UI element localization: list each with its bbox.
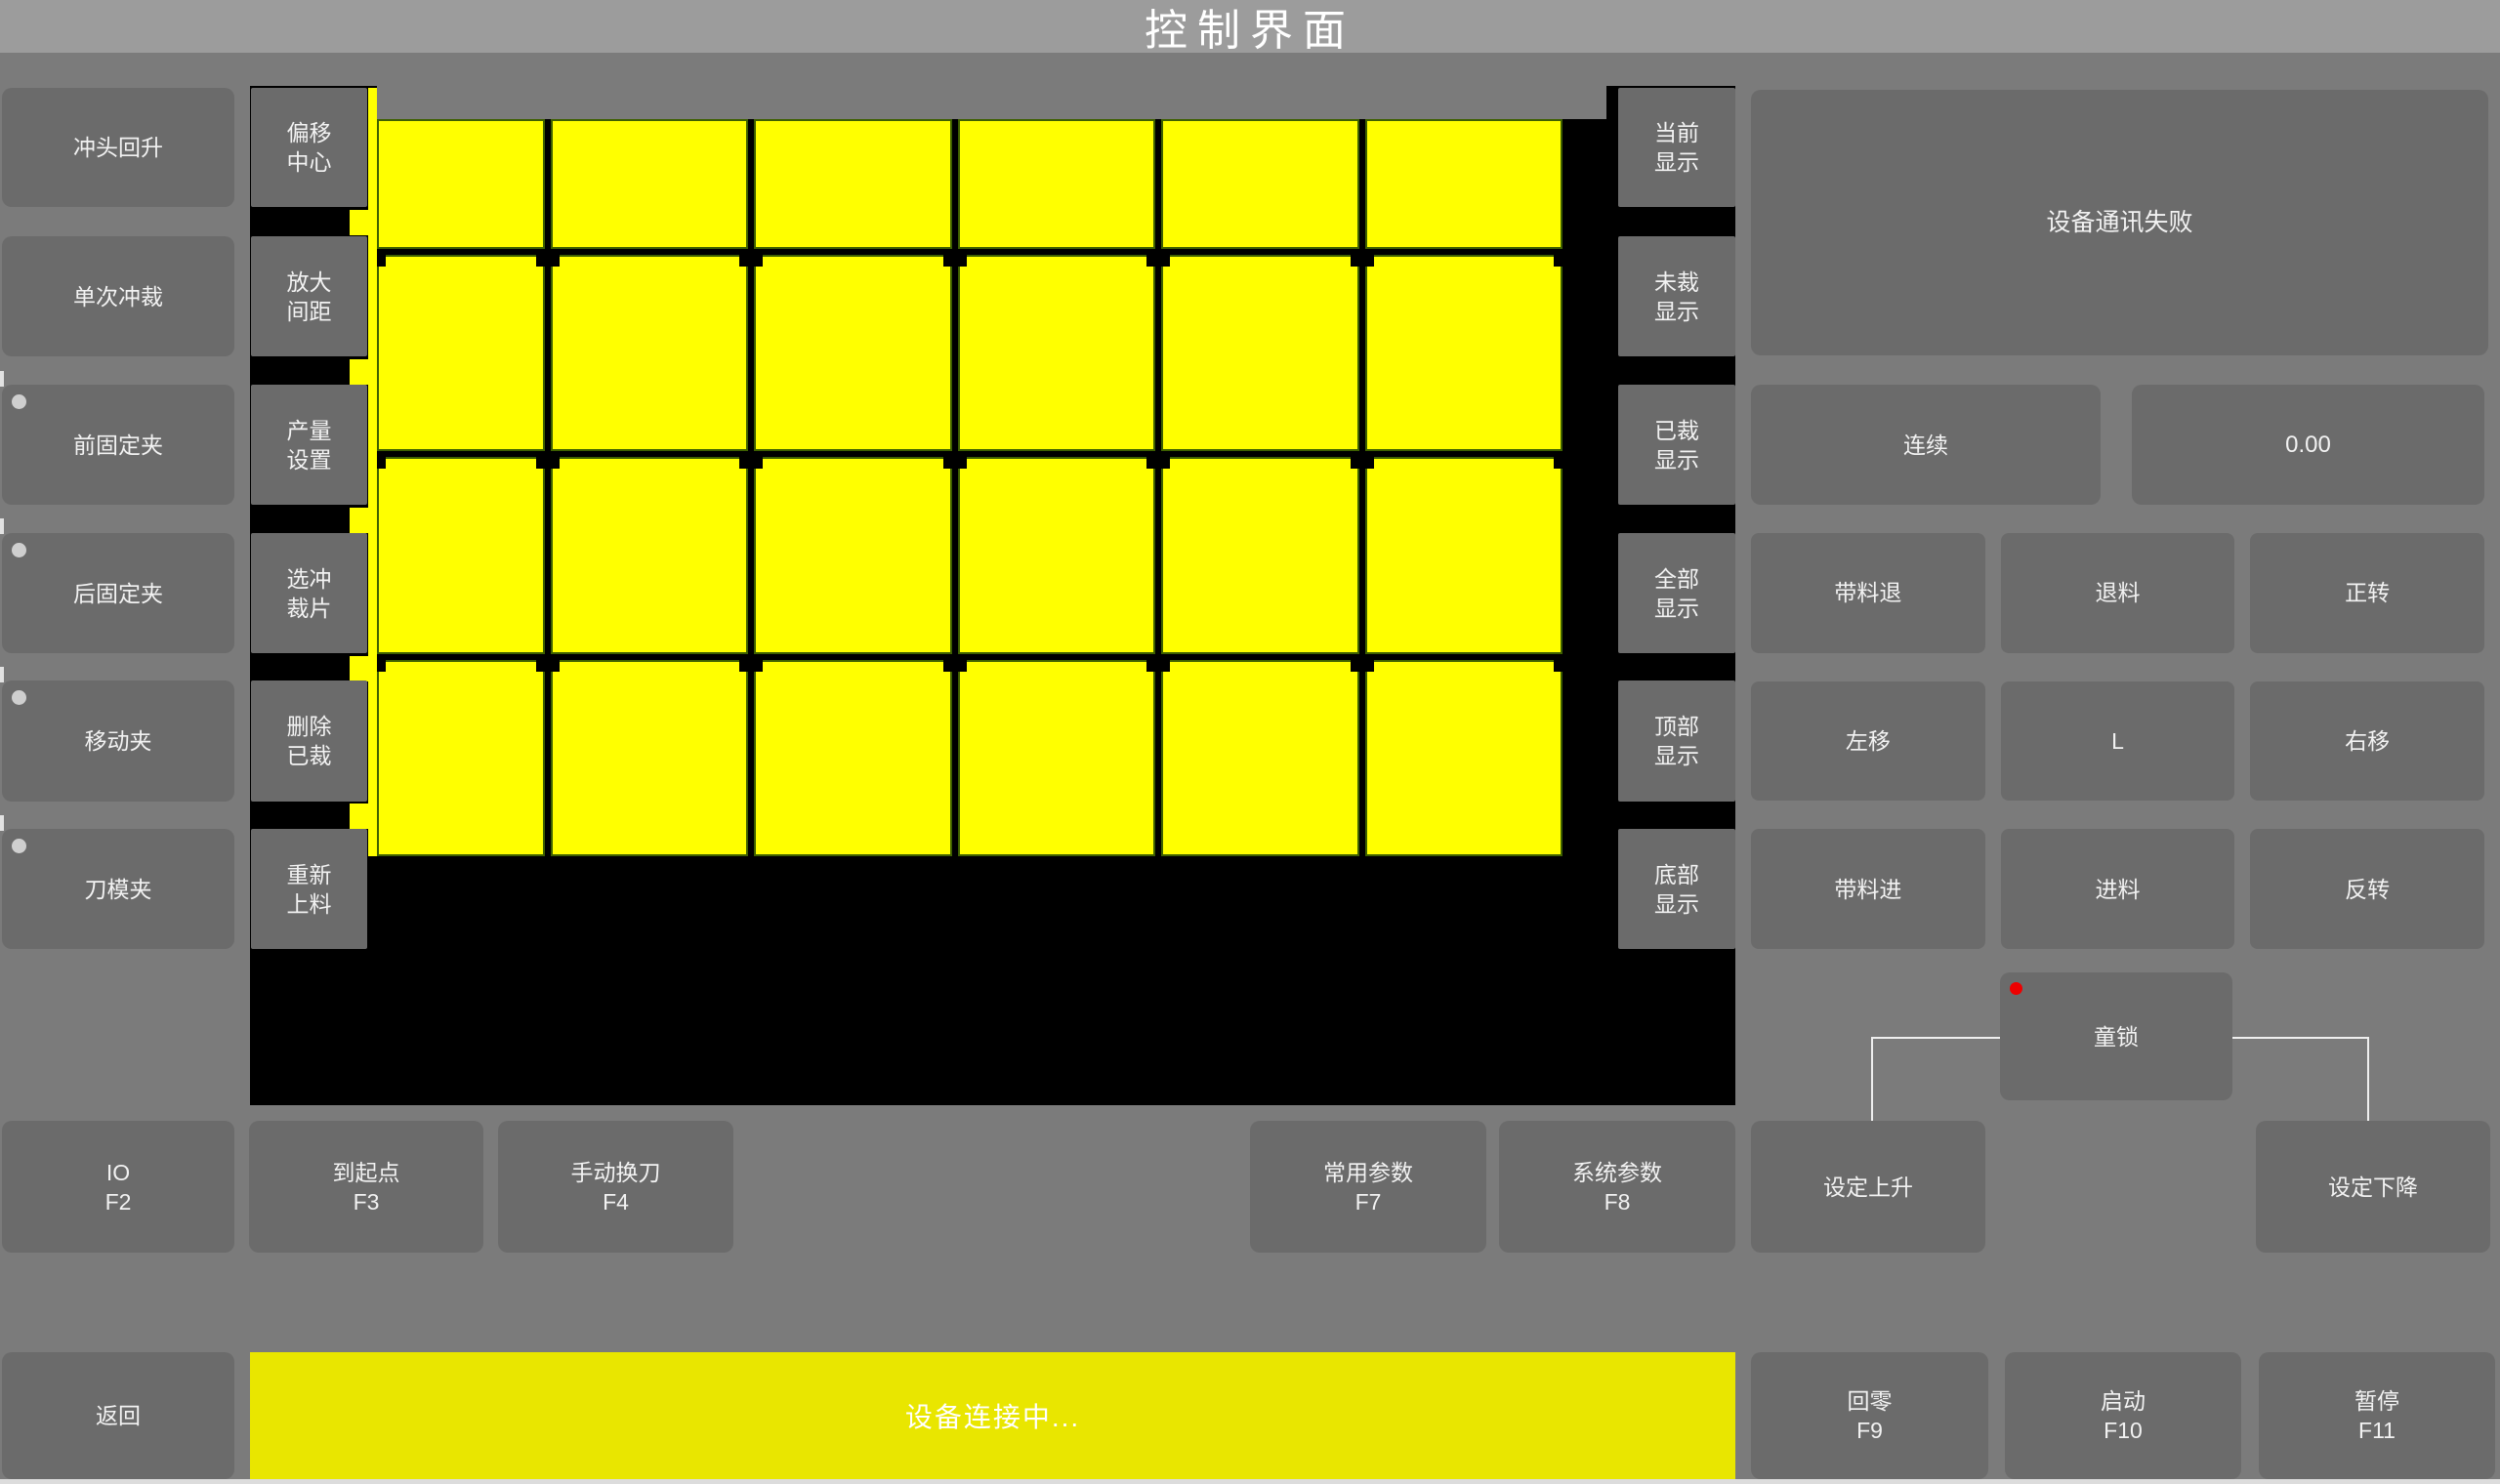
bracket-line xyxy=(2367,1037,2369,1121)
button-offset-center[interactable]: 偏移 中心 xyxy=(251,88,367,207)
grid-cell[interactable] xyxy=(754,119,951,249)
grid-cell[interactable] xyxy=(377,119,545,249)
status-message-panel: 设备通讯失败 xyxy=(1751,90,2488,355)
button-common-params-f7[interactable]: 常用参数 F7 xyxy=(1250,1121,1486,1253)
button-move-right[interactable]: 右移 xyxy=(2250,681,2484,802)
layout-canvas xyxy=(250,86,1735,1105)
bottom-edge-strip xyxy=(0,1479,2500,1484)
button-set-fall[interactable]: 设定下降 xyxy=(2256,1121,2490,1253)
button-origin-f3[interactable]: 到起点 F3 xyxy=(249,1121,483,1253)
button-l[interactable]: L xyxy=(2001,681,2235,802)
button-material-forward[interactable]: 带料进 xyxy=(1751,829,1985,949)
grid-cell[interactable] xyxy=(1161,255,1358,451)
grid-cell[interactable] xyxy=(754,660,951,856)
grid-cell[interactable] xyxy=(958,457,1155,653)
grid-cell[interactable] xyxy=(377,457,545,653)
button-delete-cut[interactable]: 删除 已裁 xyxy=(251,680,367,802)
grid-cell[interactable] xyxy=(958,255,1155,451)
grid-cell[interactable] xyxy=(1365,255,1562,451)
button-system-params-f8[interactable]: 系统参数 F8 xyxy=(1499,1121,1735,1253)
edge-tick xyxy=(0,815,4,831)
page-title: 控制界面 xyxy=(1145,0,1355,58)
button-rear-clamp[interactable]: 后固定夹 xyxy=(2,533,234,653)
grid-cell[interactable] xyxy=(1365,119,1562,249)
button-front-clamp[interactable]: 前固定夹 xyxy=(2,385,234,505)
grid-cell[interactable] xyxy=(1161,119,1358,249)
bracket-line xyxy=(2232,1037,2369,1039)
button-pause-f11[interactable]: 暂停 F11 xyxy=(2259,1352,2495,1479)
button-moving-clamp[interactable]: 移动夹 xyxy=(2,680,234,802)
grid-cell[interactable] xyxy=(958,119,1155,249)
button-unload[interactable]: 退料 xyxy=(2001,533,2235,653)
button-load[interactable]: 进料 xyxy=(2001,829,2235,949)
status-message: 设备通讯失败 xyxy=(2046,208,2192,237)
grid-cell[interactable] xyxy=(551,457,748,653)
button-manual-tool-change-f4[interactable]: 手动换刀 F4 xyxy=(498,1121,733,1253)
button-top-view[interactable]: 顶部 显示 xyxy=(1618,680,1735,802)
edge-tick xyxy=(0,518,4,534)
bracket-line xyxy=(1871,1037,1873,1121)
material-left-tab xyxy=(350,656,369,681)
button-select-pieces[interactable]: 选冲 裁片 xyxy=(251,533,367,653)
edge-tick xyxy=(0,371,4,387)
grid-cell[interactable] xyxy=(1161,457,1358,653)
edge-tick xyxy=(0,667,4,682)
connection-status-bar: 设备连接中... xyxy=(250,1352,1735,1479)
material-left-tab xyxy=(350,210,369,235)
red-indicator-dot xyxy=(2010,982,2022,995)
button-reload-material[interactable]: 重新 上料 xyxy=(251,829,367,949)
grid-cell[interactable] xyxy=(1365,660,1562,856)
grid-cell[interactable] xyxy=(958,660,1155,856)
button-punch-rise[interactable]: 冲头回升 xyxy=(2,88,234,207)
grid-cell[interactable] xyxy=(551,255,748,451)
grid-cell[interactable] xyxy=(377,660,545,856)
mode-button[interactable]: 连续 xyxy=(1751,385,2101,505)
value-display[interactable]: 0.00 xyxy=(2132,385,2484,505)
material-left-tab xyxy=(350,359,369,385)
button-forward-rotate[interactable]: 正转 xyxy=(2250,533,2484,653)
grid-cell[interactable] xyxy=(1161,660,1358,856)
status-dot xyxy=(12,543,26,557)
material-left-tab xyxy=(350,508,369,533)
child-lock-button[interactable]: 童锁 xyxy=(2000,972,2232,1100)
button-die-clamp[interactable]: 刀模夹 xyxy=(2,829,234,949)
status-dot xyxy=(12,394,26,409)
grid-cell[interactable] xyxy=(551,660,748,856)
grid-cell[interactable] xyxy=(377,255,545,451)
button-uncut-view[interactable]: 未裁 显示 xyxy=(1618,236,1735,356)
status-dot xyxy=(12,839,26,853)
button-io-f2[interactable]: IO F2 xyxy=(2,1121,234,1253)
status-dot xyxy=(12,690,26,705)
button-current-view[interactable]: 当前 显示 xyxy=(1618,88,1735,207)
button-start-f10[interactable]: 启动 F10 xyxy=(2005,1352,2241,1479)
material-left-strip xyxy=(368,88,377,856)
grid-cell[interactable] xyxy=(754,255,951,451)
button-set-rise[interactable]: 设定上升 xyxy=(1751,1121,1985,1253)
grid-cell[interactable] xyxy=(551,119,748,249)
button-all-view[interactable]: 全部 显示 xyxy=(1618,533,1735,653)
button-enlarge-spacing[interactable]: 放大 间距 xyxy=(251,236,367,356)
connection-status-text: 设备连接中... xyxy=(905,1396,1080,1435)
grid-cell[interactable] xyxy=(1365,457,1562,653)
bracket-line xyxy=(1871,1037,2000,1039)
button-single-punch[interactable]: 单次冲裁 xyxy=(2,236,234,356)
button-yield-settings[interactable]: 产量 设置 xyxy=(251,385,367,505)
jog-grid: 带料退 退料 正转 左移 L 右移 带料进 进料 反转 xyxy=(1751,533,2484,949)
button-home-f9[interactable]: 回零 F9 xyxy=(1751,1352,1988,1479)
canvas-top-strip xyxy=(377,86,1606,119)
grid-cell[interactable] xyxy=(754,457,951,653)
button-cut-view[interactable]: 已裁 显示 xyxy=(1618,385,1735,505)
button-bottom-view[interactable]: 底部 显示 xyxy=(1618,829,1735,949)
button-move-left[interactable]: 左移 xyxy=(1751,681,1985,802)
title-bar: 控制界面 xyxy=(0,0,2500,53)
piece-grid xyxy=(377,119,1562,856)
back-button[interactable]: 返回 xyxy=(2,1352,234,1479)
button-reverse-rotate[interactable]: 反转 xyxy=(2250,829,2484,949)
material-left-tab xyxy=(350,804,369,829)
button-material-back[interactable]: 带料退 xyxy=(1751,533,1985,653)
